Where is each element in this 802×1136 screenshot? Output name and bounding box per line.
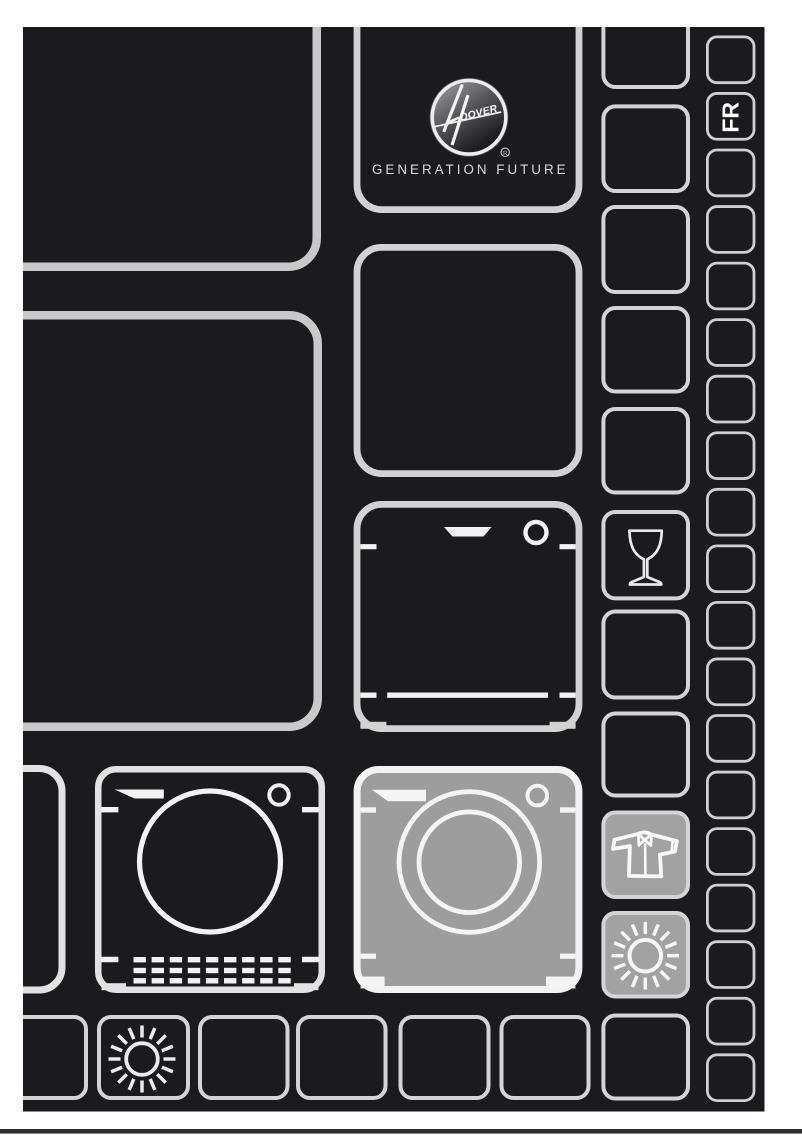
svg-text:FR: FR [718, 102, 744, 133]
svg-text:GENERATION FUTURE: GENERATION FUTURE [372, 162, 569, 177]
svg-text:R: R [503, 151, 507, 157]
